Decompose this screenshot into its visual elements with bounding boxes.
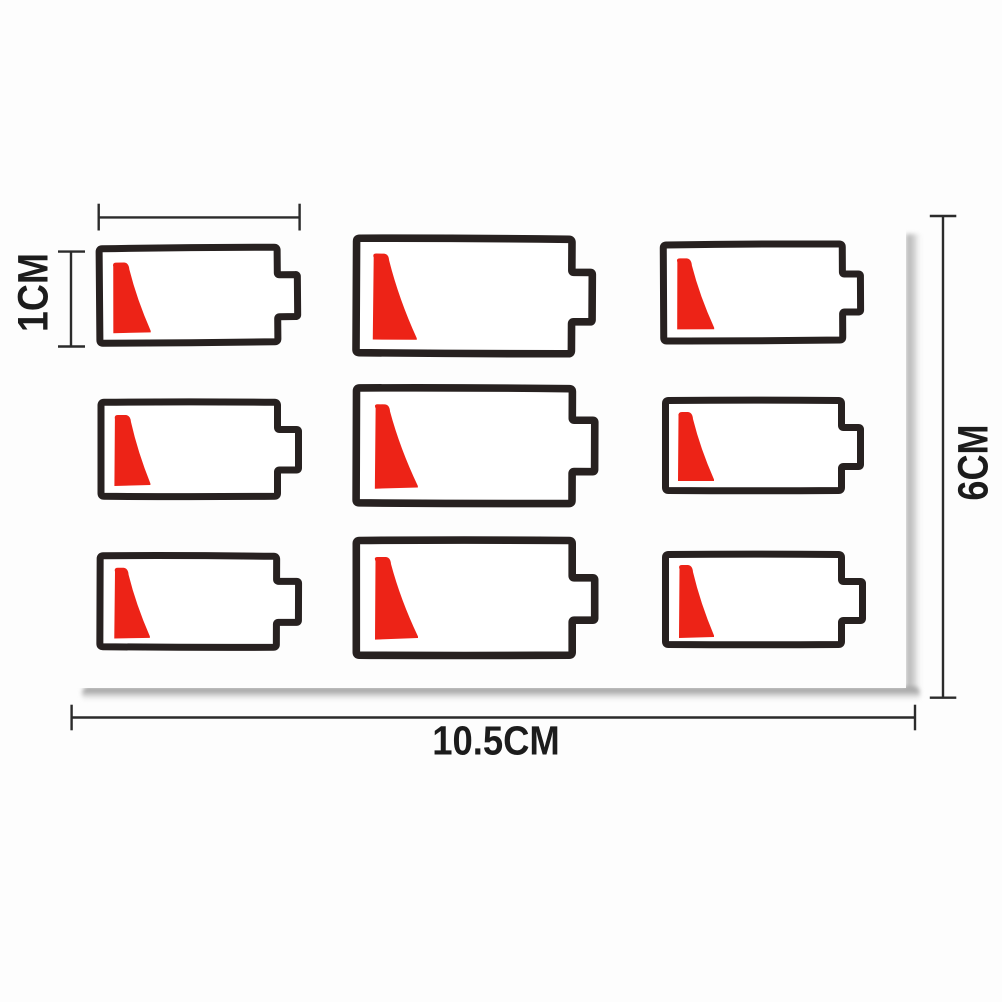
- svg-text:1CM: 1CM: [10, 253, 57, 332]
- svg-text:10.5CM: 10.5CM: [432, 719, 560, 764]
- svg-text:6CM: 6CM: [950, 424, 997, 500]
